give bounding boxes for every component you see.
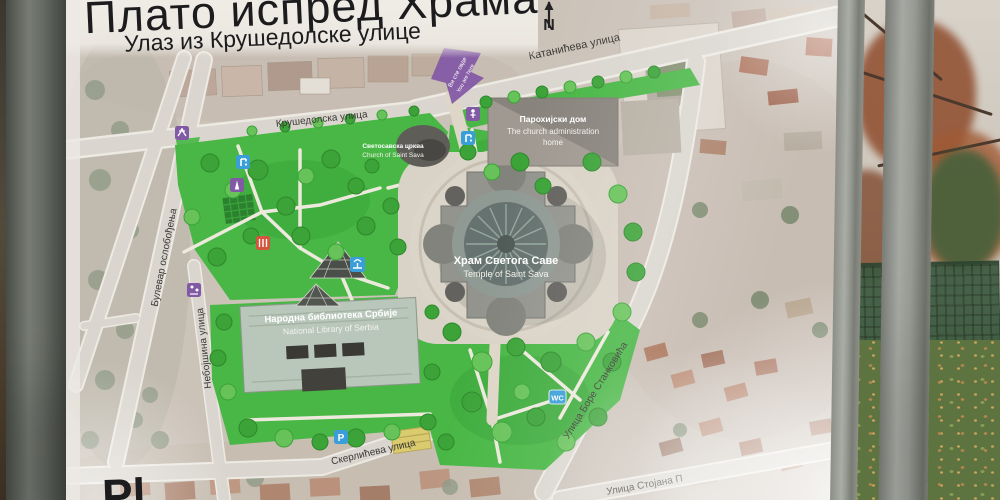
left-metal-pole bbox=[6, 0, 66, 500]
photo-glare-overlays bbox=[58, 0, 850, 500]
right-outer-metal-pole bbox=[878, 0, 934, 500]
photo-of-map-sign: WC P Ви сте овде You are here Катанићева… bbox=[0, 0, 1000, 500]
conifer-tree bbox=[924, 150, 1000, 270]
map-sign-board: WC P Ви сте овде You are here Катанићева… bbox=[58, 0, 850, 500]
